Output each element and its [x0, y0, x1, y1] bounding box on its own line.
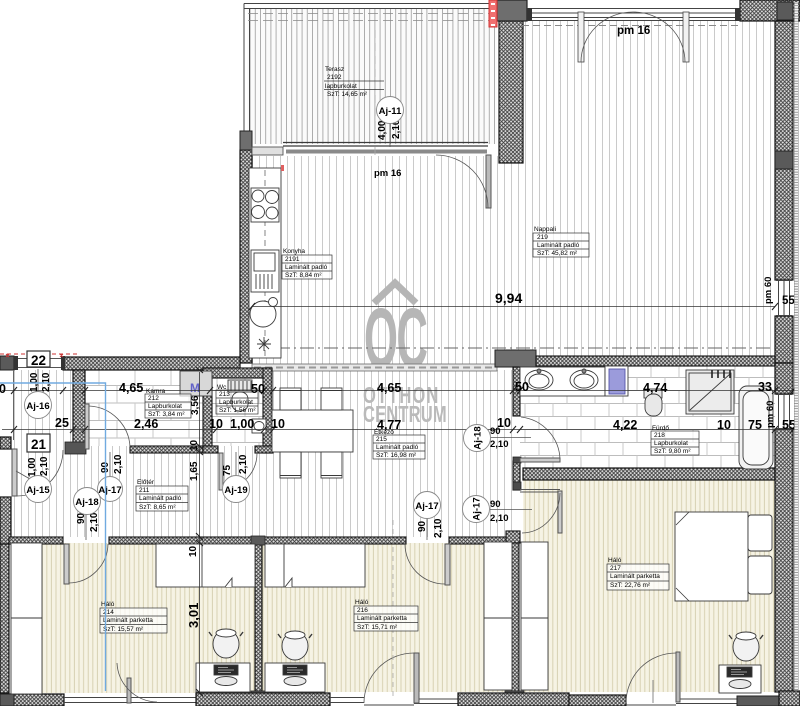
svg-text:Aj-18: Aj-18: [473, 426, 484, 449]
svg-text:212: 212: [148, 395, 159, 402]
svg-text:2,10: 2,10: [238, 454, 249, 474]
svg-text:4,65: 4,65: [119, 381, 143, 395]
svg-text:55: 55: [782, 418, 796, 432]
svg-text:2,10: 2,10: [433, 518, 444, 538]
svg-text:lapburkolat: lapburkolat: [325, 83, 357, 90]
svg-text:2,10: 2,10: [490, 513, 509, 524]
svg-text:SzT: 22,76 m²: SzT: 22,76 m²: [610, 582, 651, 589]
svg-text:Konyha: Konyha: [283, 248, 305, 255]
svg-text:1,00: 1,00: [230, 417, 254, 431]
svg-text:4,74: 4,74: [643, 381, 667, 395]
svg-text:90: 90: [417, 520, 428, 532]
svg-text:Laminált parketta: Laminált parketta: [357, 615, 407, 622]
svg-text:Aj-16: Aj-16: [26, 401, 49, 412]
svg-text:4,65: 4,65: [377, 381, 401, 395]
svg-text:2,10: 2,10: [113, 454, 124, 474]
svg-text:10: 10: [209, 417, 223, 431]
svg-text:Aj-19: Aj-19: [224, 485, 247, 496]
svg-text:2,10: 2,10: [41, 372, 52, 392]
svg-text:Laminált padló: Laminált padló: [537, 242, 580, 249]
svg-text:SzT: 16,98 m²: SzT: 16,98 m²: [376, 452, 417, 459]
svg-text:33: 33: [758, 380, 772, 394]
svg-text:214: 214: [103, 609, 114, 616]
svg-text:M: M: [190, 381, 200, 395]
svg-text:2191: 2191: [285, 256, 300, 263]
svg-text:2,10: 2,10: [89, 512, 100, 532]
svg-text:1,00: 1,00: [29, 372, 40, 392]
svg-text:pm 60: pm 60: [765, 401, 776, 428]
svg-text:pm 60: pm 60: [763, 277, 774, 304]
svg-text:216: 216: [357, 607, 368, 614]
svg-text:10: 10: [188, 545, 199, 557]
svg-text:3,01: 3,01: [186, 603, 201, 628]
svg-text:Lapburkolat: Lapburkolat: [148, 403, 182, 410]
svg-text:10: 10: [189, 439, 200, 451]
svg-text:0: 0: [0, 382, 6, 396]
svg-text:CENTRUM: CENTRUM: [363, 402, 447, 427]
svg-text:2,46: 2,46: [134, 417, 158, 431]
svg-text:217: 217: [610, 565, 621, 572]
svg-text:Háló: Háló: [101, 601, 115, 608]
svg-text:50: 50: [515, 380, 529, 394]
svg-text:1,00: 1,00: [27, 457, 38, 477]
svg-text:Lapburkolat: Lapburkolat: [654, 440, 688, 447]
svg-text:25: 25: [55, 416, 69, 430]
svg-text:75: 75: [222, 464, 233, 476]
svg-text:Aj-15: Aj-15: [26, 485, 50, 496]
svg-text:pm 16: pm 16: [617, 25, 650, 37]
svg-text:1,65: 1,65: [189, 461, 200, 481]
svg-text:9,94: 9,94: [495, 290, 522, 306]
svg-text:Laminált parketta: Laminált parketta: [103, 617, 153, 624]
svg-text:Laminált parketta: Laminált parketta: [610, 573, 660, 580]
svg-text:218: 218: [654, 432, 665, 439]
svg-text:Aj-11: Aj-11: [379, 106, 402, 117]
svg-text:Nappali: Nappali: [534, 226, 556, 233]
svg-text:SzT: 3,84 m²: SzT: 3,84 m²: [148, 411, 185, 418]
svg-text:Aj-17: Aj-17: [472, 497, 483, 520]
svg-text:211: 211: [139, 487, 150, 494]
svg-text:SzT: 8,84 m²: SzT: 8,84 m²: [285, 272, 322, 279]
svg-text:Terasz: Terasz: [325, 66, 344, 73]
svg-text:Laminált padló: Laminált padló: [139, 495, 182, 502]
svg-text:Étkező: Étkező: [374, 427, 394, 436]
svg-text:Háló: Háló: [608, 557, 622, 564]
svg-text:pm 16: pm 16: [374, 168, 401, 179]
svg-text:21: 21: [31, 437, 47, 452]
svg-text:Aj-17: Aj-17: [98, 485, 121, 496]
svg-text:2,10: 2,10: [39, 456, 50, 476]
svg-text:Laminált padló: Laminált padló: [285, 264, 328, 271]
svg-text:213: 213: [219, 391, 230, 398]
svg-text:SzT: 9,80 m²: SzT: 9,80 m²: [654, 448, 691, 455]
svg-text:Háló: Háló: [355, 599, 369, 606]
svg-text:215: 215: [376, 436, 387, 443]
svg-text:2192: 2192: [327, 74, 342, 81]
svg-text:SzT: 1,56 m²: SzT: 1,56 m²: [219, 407, 256, 414]
svg-text:4,22: 4,22: [613, 418, 637, 432]
svg-text:SzT: 15,71 m²: SzT: 15,71 m²: [357, 624, 398, 631]
svg-text:90: 90: [490, 426, 501, 437]
svg-text:Aj-17: Aj-17: [415, 501, 438, 512]
svg-text:10: 10: [717, 418, 731, 432]
svg-text:219: 219: [537, 234, 548, 241]
svg-text:22: 22: [31, 353, 46, 368]
svg-text:SzT: 45,82 m²: SzT: 45,82 m²: [537, 250, 578, 257]
svg-text:Előtér: Előtér: [137, 479, 155, 486]
svg-text:2,10: 2,10: [490, 439, 509, 450]
svg-text:3,56: 3,56: [190, 395, 201, 415]
svg-text:75: 75: [748, 418, 762, 432]
svg-text:SzT: 14,65 m²: SzT: 14,65 m²: [327, 91, 368, 98]
svg-text:Laminált padló: Laminált padló: [376, 444, 419, 451]
svg-text:SzT: 15,57 m²: SzT: 15,57 m²: [103, 626, 144, 633]
svg-text:90: 90: [490, 499, 501, 510]
svg-text:55: 55: [782, 295, 795, 307]
svg-text:Lapburkolat: Lapburkolat: [219, 399, 253, 406]
svg-text:Aj-18: Aj-18: [75, 497, 98, 508]
svg-text:OC: OC: [364, 292, 427, 386]
svg-text:SzT: 8,65 m²: SzT: 8,65 m²: [139, 504, 176, 511]
svg-text:10: 10: [271, 417, 285, 431]
